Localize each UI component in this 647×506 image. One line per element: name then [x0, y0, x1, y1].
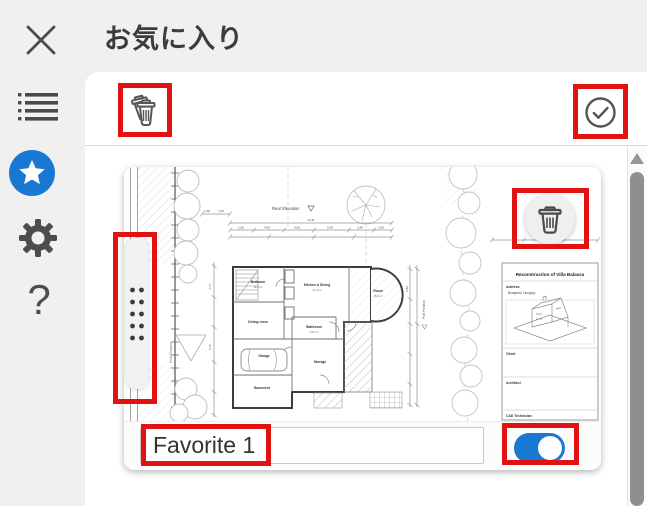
question-mark-icon: ?: [27, 276, 50, 324]
title-block-architect-label: Architect: [506, 381, 522, 385]
room-label: Bedroom: [251, 280, 266, 284]
dim-label: 1,38: [204, 209, 210, 213]
favorite-card-footer: [124, 421, 601, 470]
dim-label: 1,50: [238, 226, 244, 230]
app-window: お気に入り: [0, 0, 647, 506]
drag-handle-dots-icon: [128, 285, 146, 343]
title-block-title: Reconstruction of Villa Balassa: [516, 272, 585, 277]
toggle-knob: [538, 436, 562, 460]
title-block-client-label: Client: [506, 352, 516, 356]
drawing-thumbnail[interactable]: Rear Elevation 1,38 7,02 14,11 1,50 4,: [124, 167, 601, 421]
room-label: Storage: [314, 360, 326, 364]
dim-label: 3,74: [208, 284, 212, 290]
dim-label: 1,50: [378, 226, 384, 230]
list-icon: [18, 93, 58, 121]
delete-favorite-button[interactable]: [525, 194, 575, 244]
dim-label: 5,11: [208, 344, 212, 350]
drag-handle[interactable]: [126, 238, 148, 389]
toolbar-divider: [85, 145, 647, 146]
sidebar-item-help[interactable]: ?: [24, 276, 54, 324]
room-area: 14,0 m²: [253, 285, 262, 289]
title-block-address-label: Address: [506, 285, 520, 289]
dim-label: 14,11: [307, 218, 315, 222]
room-label: Basement: [254, 386, 271, 390]
title-block-cad-label: CAD Technician: [506, 414, 532, 418]
sidebar-item-settings[interactable]: [19, 219, 57, 257]
scrollbar-thumb[interactable]: [630, 172, 644, 506]
title-block: Reconstruction of Villa Balassa Address …: [502, 263, 598, 420]
scroll-up-arrow-icon[interactable]: [630, 153, 644, 164]
room-area: 4,54 m²: [309, 330, 318, 334]
trash-icon: [536, 203, 564, 235]
dim-label: 7,02: [218, 209, 224, 213]
room-label: Room: [373, 289, 382, 293]
room-label: Dining room: [248, 320, 267, 324]
room-area: 15,6 m²: [373, 294, 382, 298]
room-label: Bathroom: [306, 325, 322, 329]
page-title: お気に入り: [104, 17, 244, 56]
sidebar-item-favorites[interactable]: [9, 150, 55, 196]
favorite-visibility-toggle[interactable]: [514, 433, 565, 463]
dim-label: 4,50: [264, 226, 270, 230]
favorite-card[interactable]: Rear Elevation 1,38 7,02 14,11 1,50 4,: [124, 167, 601, 470]
sidebar-item-list[interactable]: [17, 92, 59, 122]
room-label: Garage: [258, 354, 270, 358]
close-button[interactable]: [22, 21, 60, 59]
dim-label: 3,00: [294, 226, 300, 230]
dim-label: 2,89: [405, 286, 409, 292]
post-position-label: Post Position: [422, 300, 426, 319]
dim-label: 2,40: [357, 226, 363, 230]
title-block-address-value: Budapest, Hungary: [508, 291, 536, 295]
gear-icon: [19, 219, 57, 257]
room-label: Kitchen & Dining: [304, 283, 331, 287]
room-area: 21,4 m²: [312, 288, 321, 292]
delete-favorites-button[interactable]: [124, 89, 166, 131]
favorite-name-input[interactable]: [140, 427, 484, 464]
confirm-selection-button[interactable]: [583, 95, 618, 130]
elevation-label: Rear Elevation: [272, 206, 300, 211]
trash-multiple-icon: [124, 89, 166, 131]
star-icon: [17, 158, 47, 188]
elevation-label: West Elevation: [169, 342, 173, 363]
check-circle-icon: [583, 95, 618, 130]
dim-label: 1,4: [538, 188, 543, 192]
close-icon: [24, 23, 58, 57]
dim-label: 5,00: [327, 226, 333, 230]
